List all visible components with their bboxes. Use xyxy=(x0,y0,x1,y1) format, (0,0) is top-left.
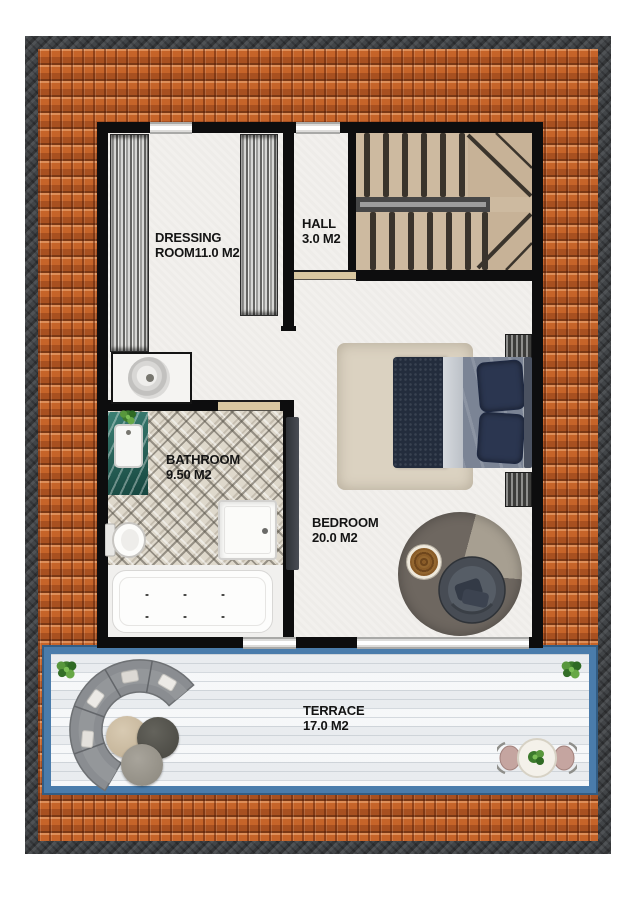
bed-pillow-bottom xyxy=(476,411,525,464)
shower-tray xyxy=(218,500,277,560)
bed-headboard xyxy=(524,357,532,468)
plant-icon xyxy=(558,656,585,683)
room-label-terrace-line1: TERRACE xyxy=(303,703,364,718)
room-label-dressing: DRESSING ROOM11.0 M2 xyxy=(155,230,240,260)
wardrobe-left xyxy=(110,134,149,352)
room-label-bathroom-line2: 9.50 M2 xyxy=(166,467,240,482)
window-bottom-bathroom xyxy=(243,637,296,649)
bathroom-door-leaf xyxy=(286,417,299,570)
toilet xyxy=(105,520,147,560)
faucet xyxy=(126,430,131,435)
room-label-bedroom-line2: 20.0 M2 xyxy=(312,530,379,545)
wall-dressing-hall xyxy=(283,133,294,330)
bathtub-jets xyxy=(128,584,250,624)
nightstand-bottom xyxy=(505,472,532,507)
window-top-hall xyxy=(296,122,340,134)
doorway-bathroom xyxy=(218,400,280,411)
staircase xyxy=(356,133,532,270)
window-top-dressing xyxy=(150,122,192,134)
washing-machine-knob xyxy=(146,374,154,382)
room-label-bathroom-line1: BATHROOM xyxy=(166,452,240,467)
window-bottom-bedroom xyxy=(357,637,529,649)
room-label-bedroom: BEDROOM 20.0 M2 xyxy=(312,515,379,545)
room-label-hall-line1: HALL xyxy=(302,216,341,231)
room-label-hall-line2: 3.0 M2 xyxy=(302,231,341,246)
room-label-dressing-line2: ROOM11.0 M2 xyxy=(155,245,240,260)
wall-bathroom-top-right xyxy=(280,400,294,411)
doorway-hall-bedroom xyxy=(294,270,356,280)
room-label-bathroom: BATHROOM 9.50 M2 xyxy=(166,452,240,482)
floor-plan-canvas: DRESSING ROOM11.0 M2 HALL 3.0 M2 BATHROO… xyxy=(0,0,637,900)
room-label-hall: HALL 3.0 M2 xyxy=(302,216,341,246)
bed-pillow-top xyxy=(476,359,526,413)
room-label-dressing-line1: DRESSING xyxy=(155,230,240,245)
shower-drain xyxy=(262,528,268,534)
plant-icon xyxy=(117,406,139,428)
wardrobe-right xyxy=(240,134,278,316)
bed-sheet xyxy=(443,357,465,468)
lounge-armchair xyxy=(438,556,506,624)
wall-hall-bedroom xyxy=(356,270,532,281)
room-label-terrace-line2: 17.0 M2 xyxy=(303,718,364,733)
bed-duvet xyxy=(393,357,445,468)
coffee-table-gray xyxy=(121,744,163,786)
room-label-bedroom-line1: BEDROOM xyxy=(312,515,379,530)
dining-set xyxy=(497,735,577,781)
room-label-terrace: TERRACE 17.0 M2 xyxy=(303,703,364,733)
door-jamb xyxy=(281,326,296,331)
side-table xyxy=(407,545,441,579)
